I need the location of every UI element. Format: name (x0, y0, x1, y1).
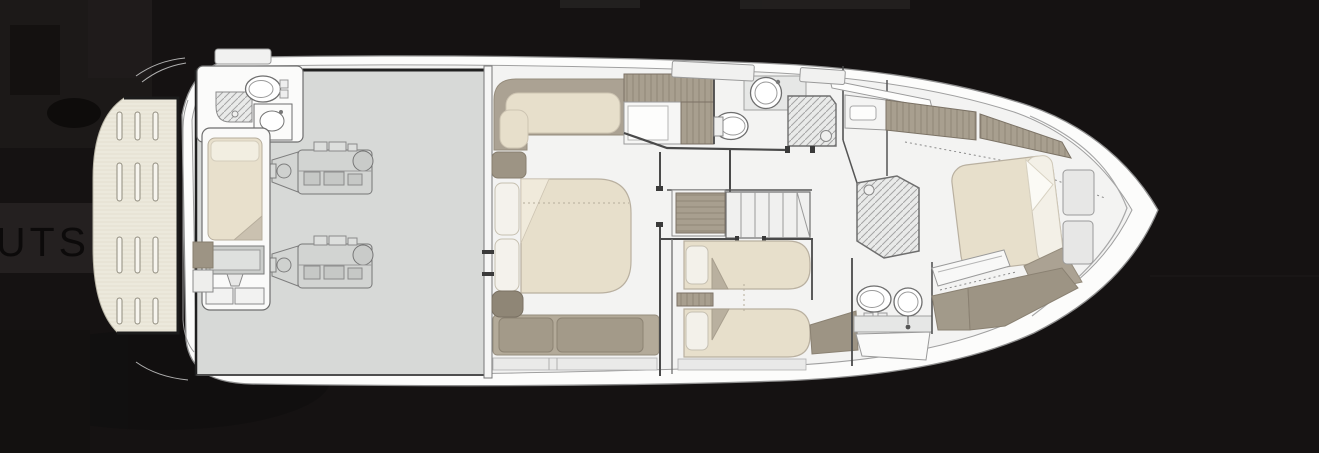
forward-bulkhead-wall (484, 66, 492, 378)
bow-step (1063, 170, 1094, 215)
door-jamb (785, 146, 790, 153)
drawer (235, 288, 264, 304)
toilet-tank (714, 117, 723, 136)
deck-hatch (800, 67, 846, 84)
armrest (492, 291, 523, 317)
pillow-icon (495, 183, 519, 235)
seat-pad (492, 152, 526, 178)
tv-screen (210, 250, 260, 270)
side-hatch (850, 106, 876, 120)
locker (193, 242, 213, 268)
layouts-page-section: UTS (0, 0, 1319, 453)
door-jamb (810, 146, 815, 153)
shower-drain-icon (864, 185, 874, 195)
door-jamb (482, 272, 494, 276)
faucet-icon (776, 80, 780, 84)
toilet-tank (280, 90, 288, 98)
shower-drain-icon (821, 131, 832, 142)
vanity-counter (854, 316, 932, 332)
layouts-text: UTS (0, 219, 90, 265)
door-jamb (482, 250, 494, 254)
toilet-icon (246, 76, 281, 102)
door-jamb (656, 222, 663, 227)
swim-platform (93, 98, 178, 333)
pillow-icon (686, 246, 708, 284)
door-jamb (656, 186, 663, 191)
faucet-icon (279, 110, 283, 114)
staircase-area (661, 190, 813, 243)
pillow-icon (211, 141, 259, 161)
deck-hatch (215, 49, 271, 64)
yacht-floorplan-image: UTS (0, 0, 1319, 453)
hull-side-locker (932, 288, 970, 330)
shower-drain-icon (232, 111, 238, 117)
wardrobe (681, 102, 714, 144)
layouts-heading: UTS (0, 203, 95, 273)
bow-step (1063, 221, 1093, 264)
sofa-cushion (499, 318, 553, 352)
shower-icon (216, 92, 252, 122)
toilet-tank (280, 80, 288, 88)
hull-window-band (678, 359, 806, 370)
toilet-icon (857, 286, 891, 312)
vanity-cabinet (856, 332, 930, 360)
dresser-top (628, 106, 668, 140)
faucet-dot (906, 325, 911, 330)
locker (193, 270, 213, 292)
nightstand (677, 293, 713, 306)
pillow-icon (495, 239, 519, 291)
sofa-cushion (557, 318, 643, 352)
hull-window-band (493, 358, 657, 370)
pillow-icon (686, 312, 708, 350)
wardrobe (676, 193, 725, 233)
sofa-cushion (500, 110, 528, 148)
room-crew-cabin (193, 128, 270, 310)
